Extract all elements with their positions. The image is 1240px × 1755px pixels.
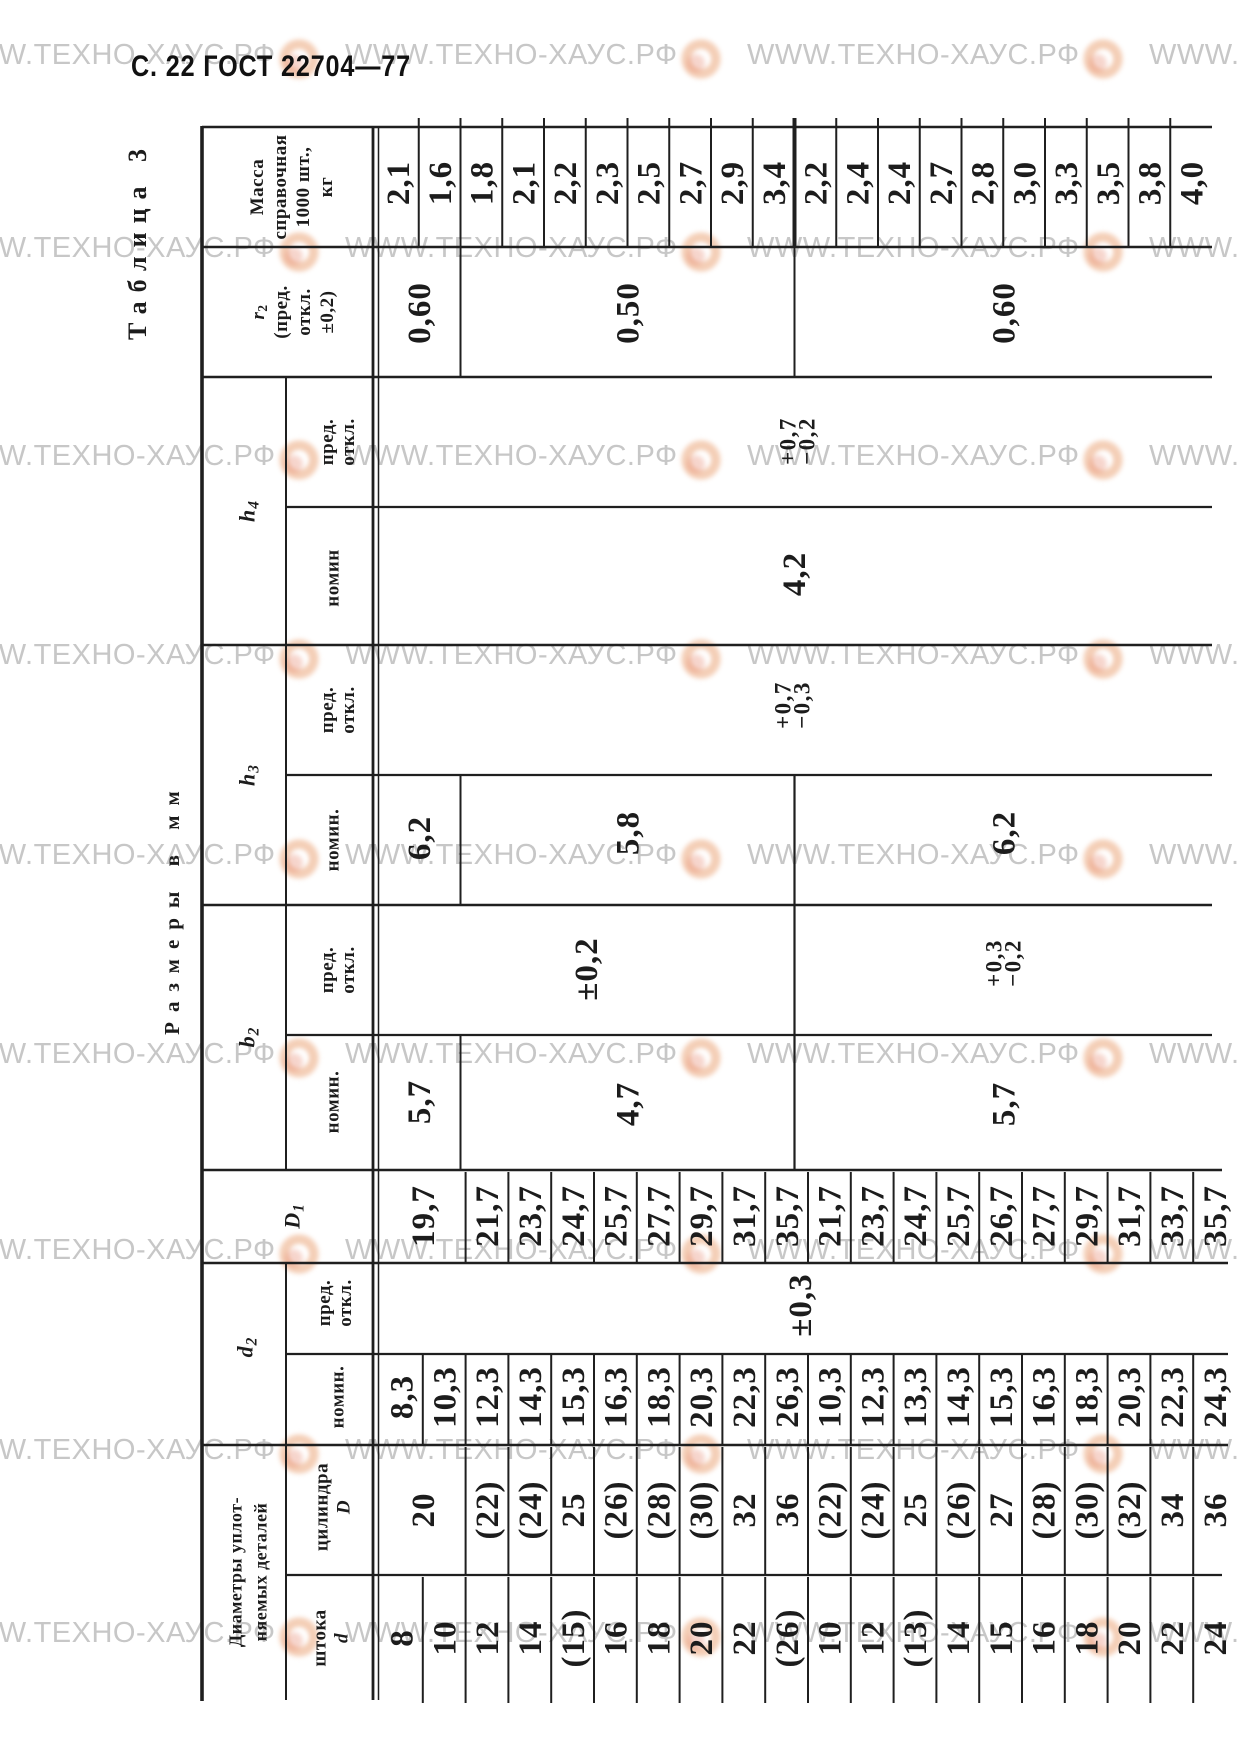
svg-text:18: 18: [641, 1621, 677, 1656]
svg-text:31,7: 31,7: [727, 1185, 763, 1247]
svg-text:24,7: 24,7: [556, 1185, 592, 1247]
svg-text:3,3: 3,3: [1049, 161, 1085, 205]
svg-text:15,3: 15,3: [556, 1366, 592, 1428]
svg-text:2,4: 2,4: [840, 161, 876, 205]
svg-text:(24): (24): [855, 1481, 891, 1540]
svg-text:2,1: 2,1: [506, 161, 542, 205]
svg-text:2,5: 2,5: [632, 161, 668, 205]
svg-text:пред.: пред.: [314, 1280, 335, 1327]
svg-text:5,8: 5,8: [611, 811, 647, 855]
svg-text:5,7: 5,7: [402, 1080, 438, 1124]
svg-text:12: 12: [855, 1621, 891, 1656]
svg-text:h3: h3: [234, 764, 262, 786]
svg-text:27,7: 27,7: [641, 1185, 677, 1247]
svg-text:16: 16: [1027, 1621, 1063, 1656]
svg-text:номин.: номин.: [322, 809, 343, 872]
svg-text:(24): (24): [513, 1481, 549, 1540]
svg-text:24,3: 24,3: [1198, 1366, 1234, 1428]
svg-text:20,3: 20,3: [1112, 1366, 1148, 1428]
svg-text:32: 32: [727, 1493, 763, 1528]
svg-text:(22): (22): [470, 1481, 506, 1540]
svg-text:15: 15: [984, 1621, 1020, 1656]
svg-text:2,8: 2,8: [966, 161, 1002, 205]
svg-text:21,7: 21,7: [813, 1185, 849, 1247]
svg-text:0,60: 0,60: [986, 282, 1022, 344]
svg-text:d: d: [331, 1633, 352, 1643]
svg-text:20: 20: [406, 1493, 442, 1528]
svg-text:2,7: 2,7: [673, 161, 709, 205]
svg-text:1,6: 1,6: [423, 161, 459, 205]
svg-text:(28): (28): [641, 1481, 677, 1540]
svg-text:25,7: 25,7: [599, 1185, 635, 1247]
svg-text:−0,3: −0,3: [789, 681, 814, 729]
svg-text:36: 36: [1198, 1493, 1234, 1528]
svg-text:8: 8: [385, 1629, 421, 1647]
svg-text:27,7: 27,7: [1027, 1185, 1063, 1247]
svg-text:22: 22: [1155, 1621, 1191, 1656]
svg-text:±0,2): ±0,2): [317, 290, 338, 333]
svg-text:6,2: 6,2: [986, 811, 1022, 855]
svg-text:4,0: 4,0: [1174, 161, 1210, 205]
svg-text:1000 шт.,: 1000 шт.,: [293, 147, 314, 228]
svg-text:2,2: 2,2: [799, 161, 835, 205]
svg-text:2,7: 2,7: [924, 161, 960, 205]
svg-text:(26): (26): [941, 1481, 977, 1540]
svg-text:18: 18: [1069, 1621, 1105, 1656]
svg-text:20: 20: [684, 1621, 720, 1656]
svg-text:22,3: 22,3: [1155, 1366, 1191, 1428]
svg-text:d2: d2: [232, 1337, 260, 1358]
svg-text:номин: номин: [322, 549, 343, 606]
svg-text:(13): (13): [898, 1609, 934, 1668]
svg-text:22,3: 22,3: [727, 1366, 763, 1428]
svg-text:D1: D1: [279, 1203, 307, 1230]
svg-text:(26): (26): [770, 1609, 806, 1668]
svg-text:20,3: 20,3: [684, 1366, 720, 1428]
svg-text:2,2: 2,2: [548, 161, 584, 205]
svg-text:14,3: 14,3: [941, 1366, 977, 1428]
svg-text:25: 25: [556, 1493, 592, 1528]
svg-text:2,1: 2,1: [381, 161, 417, 205]
svg-text:3,0: 3,0: [1007, 161, 1043, 205]
svg-text:12,3: 12,3: [470, 1366, 506, 1428]
svg-text:кг: кг: [316, 177, 337, 198]
svg-text:Диаметры уплот-: Диаметры уплот-: [226, 1497, 246, 1647]
svg-text:24,7: 24,7: [898, 1185, 934, 1247]
svg-text:27: 27: [984, 1493, 1020, 1528]
svg-text:3,4: 3,4: [757, 161, 793, 205]
svg-text:8,3: 8,3: [385, 1375, 421, 1419]
svg-text:откл.: откл.: [338, 418, 359, 465]
svg-text:2,9: 2,9: [715, 161, 751, 205]
svg-text:справочная: справочная: [270, 134, 291, 239]
svg-text:4,2: 4,2: [777, 552, 813, 596]
svg-text:20: 20: [1112, 1621, 1148, 1656]
svg-text:23,7: 23,7: [513, 1185, 549, 1247]
svg-text:35,7: 35,7: [1198, 1185, 1234, 1247]
svg-text:15,3: 15,3: [984, 1366, 1020, 1428]
svg-text:16,3: 16,3: [1027, 1366, 1063, 1428]
svg-text:18,3: 18,3: [641, 1366, 677, 1428]
svg-text:21,7: 21,7: [470, 1185, 506, 1247]
svg-text:±0,2: ±0,2: [569, 937, 605, 1000]
svg-text:штока: штока: [309, 1609, 330, 1666]
svg-text:12,3: 12,3: [855, 1366, 891, 1428]
svg-text:Размеры в мм: Размеры в мм: [160, 781, 184, 1035]
svg-text:2,4: 2,4: [882, 161, 918, 205]
svg-text:откл.: откл.: [335, 1279, 356, 1326]
svg-text:(30): (30): [1069, 1481, 1105, 1540]
svg-text:пред.: пред.: [317, 687, 338, 734]
svg-text:Таблица 3: Таблица 3: [123, 140, 152, 340]
svg-text:(28): (28): [1027, 1481, 1063, 1540]
svg-text:26,3: 26,3: [770, 1366, 806, 1428]
svg-text:29,7: 29,7: [684, 1185, 720, 1247]
svg-text:b2: b2: [234, 1027, 262, 1048]
svg-text:(30): (30): [684, 1481, 720, 1540]
svg-text:−0,2: −0,2: [1001, 939, 1026, 987]
svg-text:29,7: 29,7: [1069, 1185, 1105, 1247]
svg-text:26,7: 26,7: [984, 1185, 1020, 1247]
svg-text:(22): (22): [813, 1481, 849, 1540]
svg-text:16,3: 16,3: [599, 1366, 635, 1428]
svg-text:16: 16: [599, 1621, 635, 1656]
svg-text:±0,3: ±0,3: [783, 1273, 819, 1336]
svg-text:−0,2: −0,2: [794, 417, 819, 465]
svg-text:откл.: откл.: [338, 686, 359, 733]
svg-text:14: 14: [941, 1621, 977, 1656]
svg-text:24: 24: [1198, 1621, 1234, 1656]
svg-text:10: 10: [427, 1621, 463, 1656]
svg-text:номин.: номин.: [327, 1366, 348, 1429]
svg-text:2,3: 2,3: [590, 161, 626, 205]
svg-text:D: D: [333, 1500, 354, 1515]
svg-text:h4: h4: [234, 500, 262, 522]
svg-text:10,3: 10,3: [813, 1366, 849, 1428]
svg-text:(15): (15): [556, 1609, 592, 1668]
svg-text:10,3: 10,3: [427, 1366, 463, 1428]
svg-text:номин.: номин.: [322, 1071, 343, 1134]
svg-text:5,7: 5,7: [986, 1082, 1022, 1126]
svg-text:33,7: 33,7: [1155, 1185, 1191, 1247]
svg-text:23,7: 23,7: [855, 1185, 891, 1247]
svg-text:(32): (32): [1112, 1481, 1148, 1540]
svg-text:0,60: 0,60: [402, 282, 438, 344]
svg-text:4,7: 4,7: [611, 1082, 647, 1126]
svg-text:цилиндра: цилиндра: [311, 1463, 332, 1551]
svg-text:(26): (26): [599, 1481, 635, 1540]
svg-text:откл.: откл.: [338, 946, 359, 993]
svg-text:пред.: пред.: [317, 419, 338, 466]
svg-text:14: 14: [513, 1621, 549, 1656]
svg-text:34: 34: [1155, 1493, 1191, 1528]
svg-text:22: 22: [727, 1621, 763, 1656]
svg-text:r2: r2: [248, 304, 270, 319]
svg-text:няемых деталей: няемых деталей: [251, 1503, 271, 1642]
svg-text:36: 36: [770, 1493, 806, 1528]
svg-text:3,5: 3,5: [1091, 161, 1127, 205]
svg-text:(пред.: (пред.: [271, 285, 292, 338]
svg-text:14,3: 14,3: [513, 1366, 549, 1428]
svg-text:0,50: 0,50: [611, 282, 647, 344]
svg-text:6,2: 6,2: [402, 816, 438, 860]
svg-text:1,8: 1,8: [465, 161, 501, 205]
svg-text:25,7: 25,7: [941, 1185, 977, 1247]
svg-text:пред.: пред.: [317, 947, 338, 994]
svg-text:18,3: 18,3: [1069, 1366, 1105, 1428]
svg-text:25: 25: [898, 1493, 934, 1528]
svg-text:10: 10: [813, 1621, 849, 1656]
svg-text:12: 12: [470, 1621, 506, 1656]
svg-text:31,7: 31,7: [1112, 1185, 1148, 1247]
svg-text:13,3: 13,3: [898, 1366, 934, 1428]
svg-text:Масса: Масса: [247, 159, 268, 216]
svg-text:19,7: 19,7: [406, 1185, 442, 1247]
svg-text:35,7: 35,7: [770, 1185, 806, 1247]
svg-text:3,8: 3,8: [1133, 161, 1169, 205]
svg-text:откл.: откл.: [294, 288, 315, 335]
